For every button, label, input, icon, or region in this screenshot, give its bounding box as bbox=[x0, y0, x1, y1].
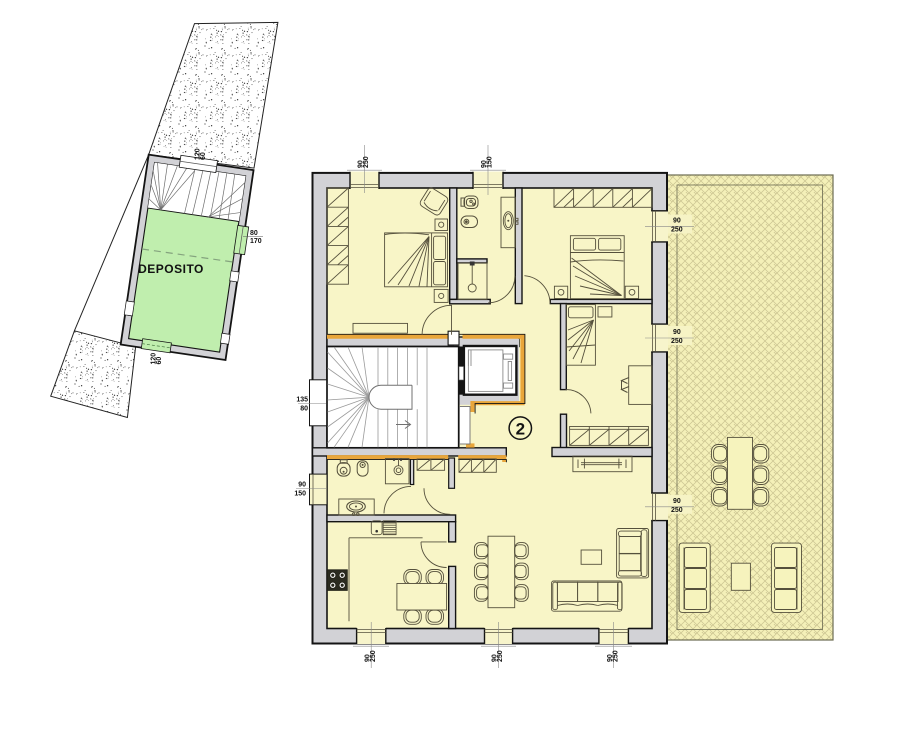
svg-text:150: 150 bbox=[487, 156, 494, 168]
svg-text:DEPOSITO: DEPOSITO bbox=[138, 262, 204, 276]
svg-text:80: 80 bbox=[250, 230, 258, 237]
svg-text:250: 250 bbox=[497, 650, 504, 662]
svg-text:250: 250 bbox=[671, 227, 683, 234]
svg-text:250: 250 bbox=[370, 650, 377, 662]
svg-text:150: 150 bbox=[294, 491, 306, 498]
svg-text:250: 250 bbox=[671, 338, 683, 345]
svg-text:90: 90 bbox=[673, 218, 681, 225]
svg-text:250: 250 bbox=[363, 156, 370, 168]
svg-text:90: 90 bbox=[673, 498, 681, 505]
svg-text:60: 60 bbox=[200, 152, 207, 160]
svg-text:250: 250 bbox=[612, 650, 619, 662]
svg-text:170: 170 bbox=[250, 238, 262, 245]
svg-text:135: 135 bbox=[296, 397, 308, 404]
svg-text:60: 60 bbox=[156, 357, 163, 365]
svg-text:2: 2 bbox=[516, 419, 525, 438]
svg-text:250: 250 bbox=[671, 507, 683, 514]
svg-text:90: 90 bbox=[673, 329, 681, 336]
svg-text:90: 90 bbox=[298, 482, 306, 489]
svg-text:80: 80 bbox=[300, 406, 308, 413]
